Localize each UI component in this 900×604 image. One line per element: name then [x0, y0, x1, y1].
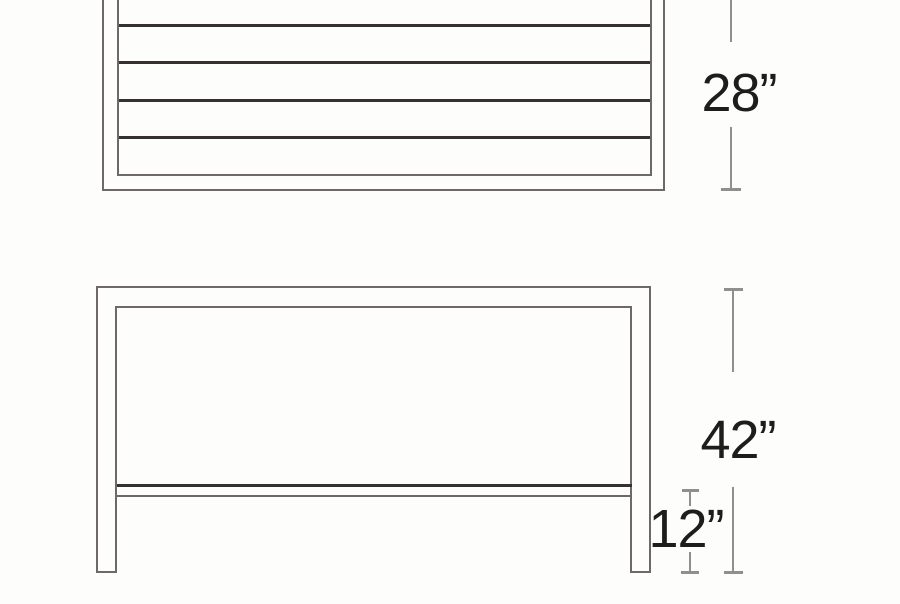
- dimension-diagram: 28” 42” 12”: [0, 0, 900, 604]
- front-view-inner-contour: [115, 306, 632, 573]
- dimension-label-28: 28”: [701, 66, 776, 120]
- right-leg-foot-line: [630, 571, 651, 573]
- slat-line: [119, 61, 650, 64]
- stretcher-top-line: [117, 484, 632, 487]
- dimension-line: [730, 127, 732, 189]
- stretcher-bottom-line: [117, 495, 632, 497]
- dimension-end-tick: [721, 188, 741, 191]
- dimension-line: [730, 0, 732, 42]
- left-leg-foot-line: [96, 571, 117, 573]
- dimension-line: [732, 487, 734, 572]
- slat-line: [119, 136, 650, 139]
- dimension-label-42: 42”: [700, 413, 775, 467]
- dimension-line: [689, 552, 691, 571]
- dimension-line: [732, 290, 734, 372]
- dimension-label-12: 12”: [648, 502, 723, 556]
- slat-line: [119, 24, 650, 27]
- dimension-end-tick: [681, 571, 699, 574]
- dimension-end-tick: [724, 571, 743, 574]
- slat-line: [119, 99, 650, 102]
